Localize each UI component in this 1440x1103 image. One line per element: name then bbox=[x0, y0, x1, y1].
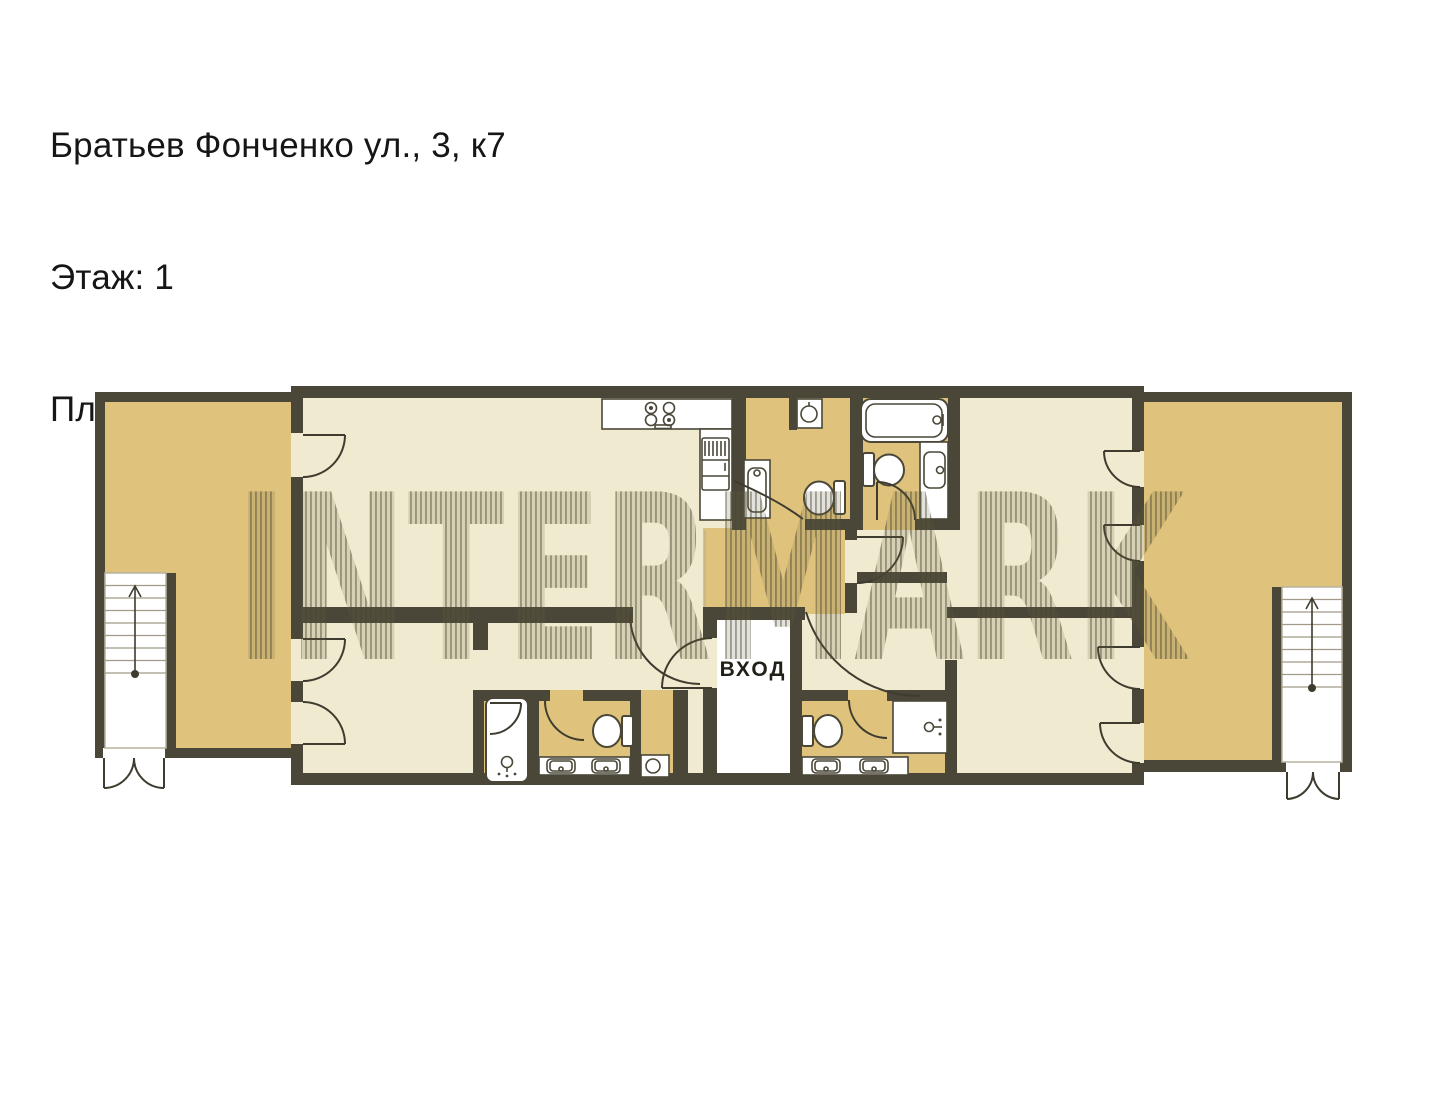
wall-segment bbox=[1272, 587, 1282, 762]
stairs-left bbox=[105, 573, 166, 748]
wall-segment bbox=[1140, 392, 1352, 402]
double-vanity bbox=[802, 757, 908, 775]
wall-segment bbox=[95, 392, 105, 758]
sink-icon bbox=[797, 399, 822, 428]
stairs-right bbox=[1282, 587, 1342, 762]
floorplan-page: Братьев Фонченко ул., 3, к7 Этаж: 1 Площ… bbox=[0, 0, 1440, 1103]
wall-segment bbox=[95, 748, 103, 758]
wall-segment bbox=[1144, 760, 1286, 772]
wall-segment bbox=[789, 398, 797, 430]
floorplan-drawing: ВХОД INTERMARK bbox=[0, 0, 1440, 1103]
wall-segment bbox=[1342, 392, 1352, 772]
toilet-icon bbox=[802, 715, 842, 747]
exit-opening bbox=[103, 748, 165, 758]
wall-segment bbox=[95, 392, 296, 402]
wall-segment bbox=[291, 386, 1144, 398]
washing-machine-icon bbox=[641, 755, 669, 777]
double-vanity bbox=[539, 757, 630, 775]
double-exit-door-right bbox=[1287, 772, 1339, 799]
wall-segment bbox=[291, 773, 1144, 785]
watermark: INTERMARK bbox=[235, 447, 1190, 714]
wall-segment bbox=[165, 748, 291, 758]
wall-segment bbox=[166, 573, 176, 748]
toilet-icon bbox=[593, 715, 633, 747]
double-exit-door-left bbox=[104, 758, 164, 788]
door-opening bbox=[1132, 723, 1144, 763]
bathtub-icon bbox=[861, 399, 948, 442]
